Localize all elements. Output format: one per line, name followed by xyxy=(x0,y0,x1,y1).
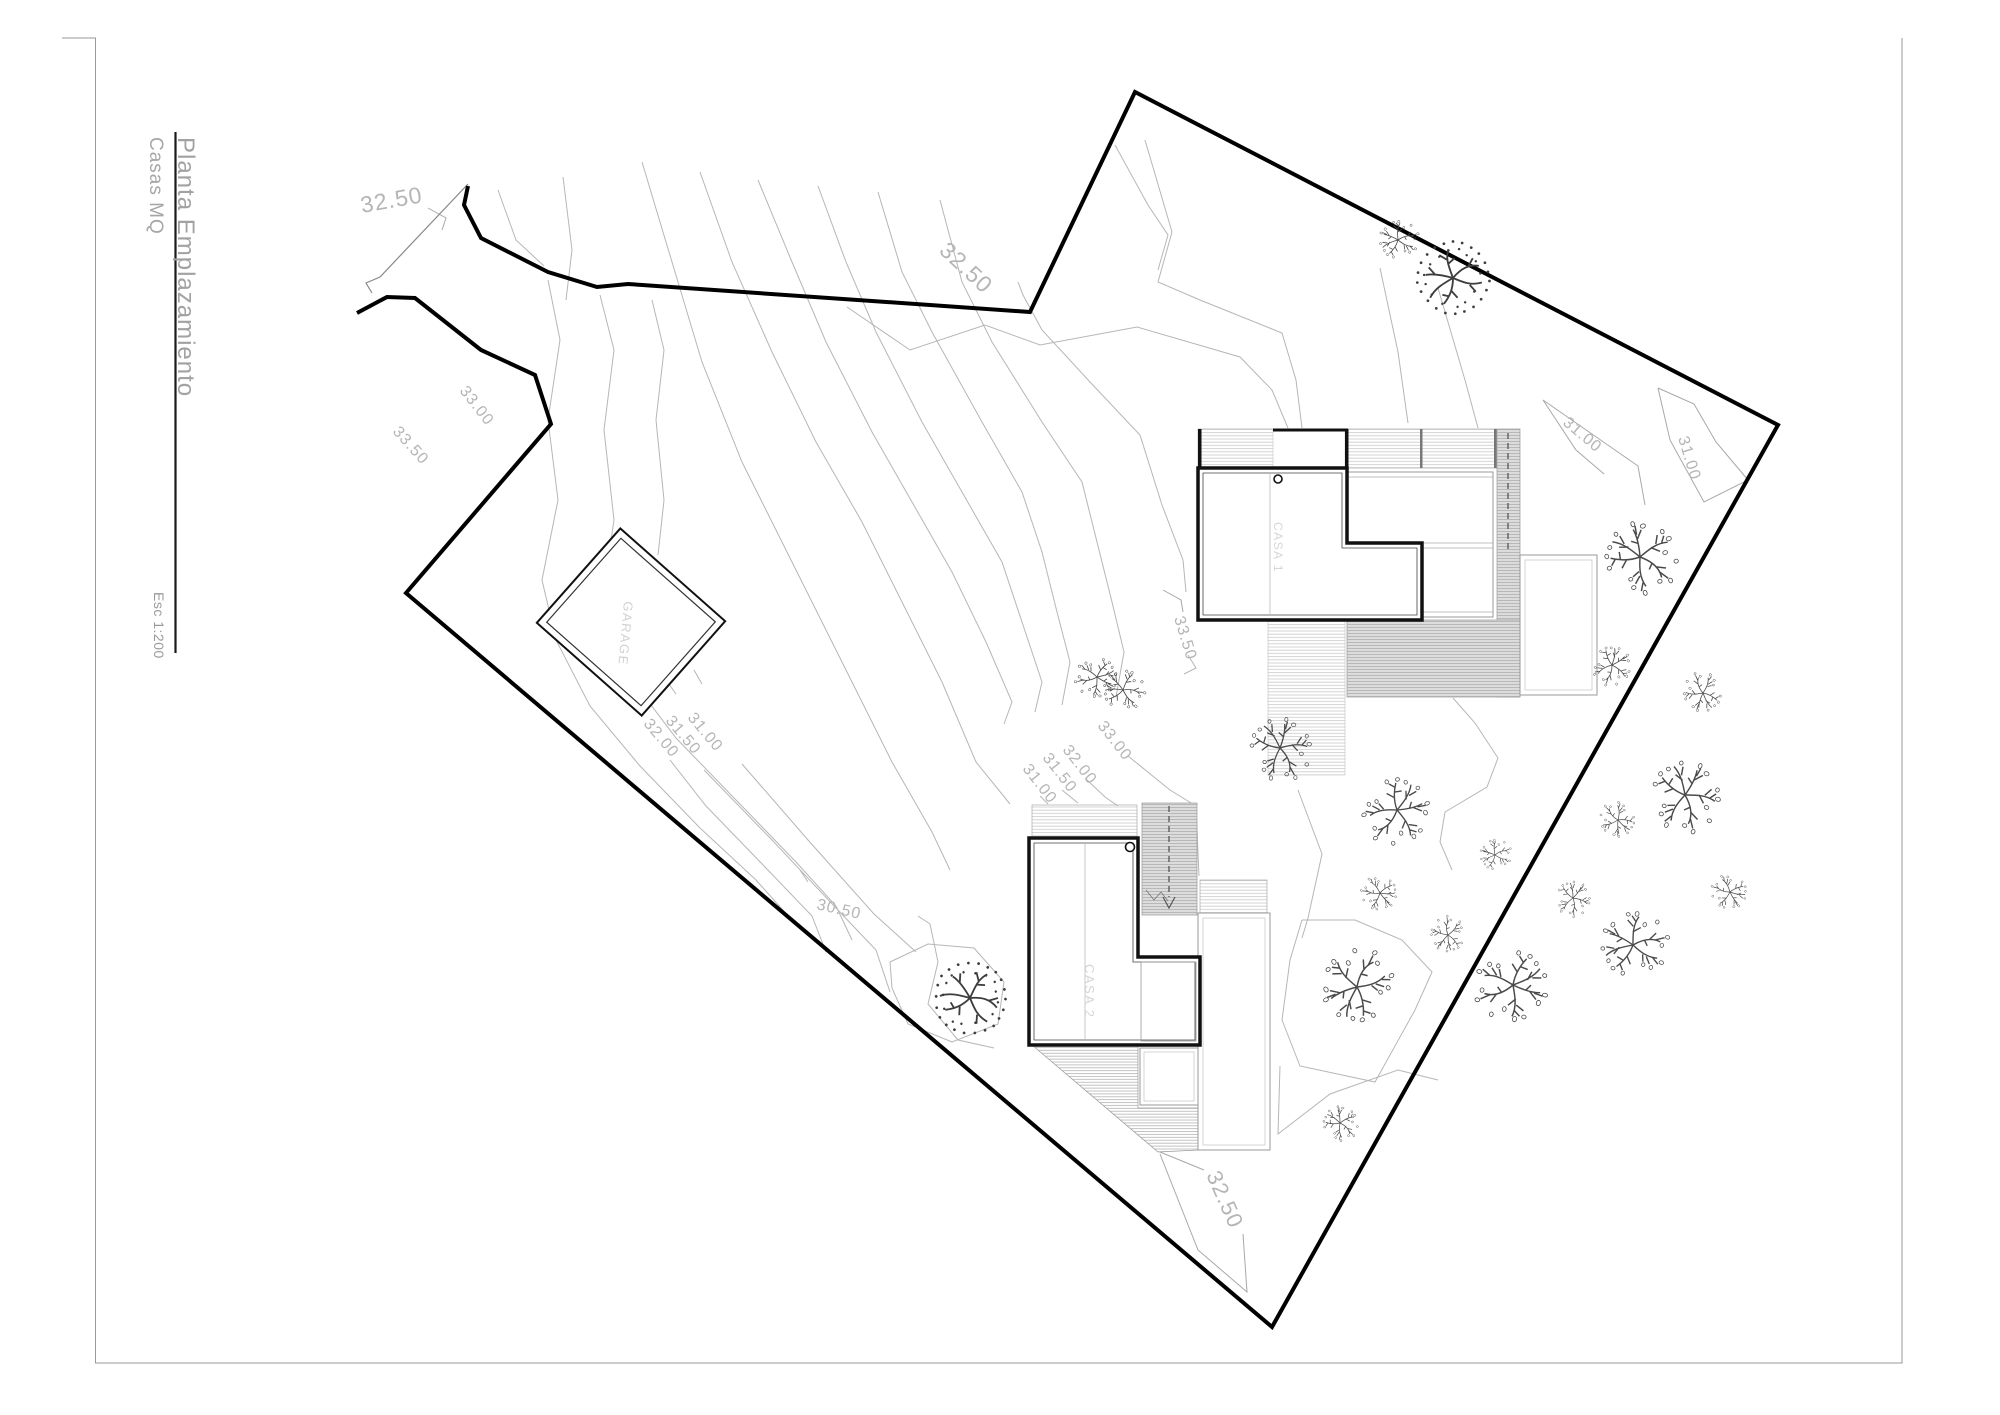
site-plan-canvas: GARAGE CASA 1 xyxy=(0,0,2000,1415)
page-subtitle: Casas MQ xyxy=(145,137,166,235)
contour-line xyxy=(704,770,890,992)
sheet-border xyxy=(62,38,1902,1363)
scale-note: Esc 1:200 xyxy=(151,592,167,659)
contour-line xyxy=(800,870,808,882)
sheet: GARAGE CASA 1 xyxy=(0,0,2000,1415)
tree-icon xyxy=(1598,799,1638,840)
casa2-east-platform xyxy=(1198,913,1270,1150)
contour-elevation-label: 30.50 xyxy=(815,896,863,923)
site-boundary-line xyxy=(357,92,1778,1327)
contour-line xyxy=(1115,145,1168,270)
contour-elevation-label: 33.50 xyxy=(389,423,432,468)
contour-line xyxy=(642,162,950,870)
casa1-deck-opening xyxy=(1273,430,1345,468)
tree-icon xyxy=(1477,837,1514,873)
contour-line xyxy=(742,764,916,952)
page-frame: Planta Emplazamiento Casas MQ Esc 1:200 xyxy=(62,38,1902,1363)
casa2-roof-vent xyxy=(1126,843,1135,852)
contour-elevation-label: 31.00 xyxy=(1674,434,1703,482)
casa1-label: CASA 1 xyxy=(1271,522,1285,573)
tree-icon xyxy=(1681,669,1726,715)
tree-icon xyxy=(1705,867,1754,917)
tree-icon xyxy=(1595,511,1687,605)
contour-line xyxy=(1298,790,1322,938)
tree-icon xyxy=(1641,751,1730,842)
casa2-upper-deck xyxy=(1032,805,1137,837)
tree-icon xyxy=(1355,868,1405,917)
tree-icon xyxy=(1591,903,1677,987)
casa1-roof-vent xyxy=(1274,475,1282,483)
contour-line xyxy=(1282,920,1432,1082)
contour-leader-line xyxy=(1160,1152,1204,1170)
casa1-walkway xyxy=(1268,620,1345,775)
contour-line xyxy=(652,300,664,555)
tree-icon xyxy=(1424,910,1472,958)
contour-elevation-label: 32.50 xyxy=(358,181,424,217)
site-boundary-layer xyxy=(357,92,1778,1327)
tree-icon xyxy=(1549,874,1597,922)
contour-elevation-label: 33.00 xyxy=(1094,718,1135,764)
contour-line xyxy=(694,670,702,684)
contour-line xyxy=(818,186,1042,712)
contour-elevation-label: 33.50 xyxy=(1170,614,1199,662)
tree-icon xyxy=(1095,661,1153,719)
contour-leader-line xyxy=(428,208,446,230)
tree-icon xyxy=(1353,769,1439,853)
contour-line xyxy=(1440,698,1498,870)
contour-line xyxy=(918,916,994,1048)
contour-line xyxy=(498,190,544,266)
casa2-east-deck xyxy=(1200,880,1267,915)
casa1-east-platform xyxy=(1520,555,1597,695)
contour-line xyxy=(1145,140,1302,428)
casa1-terrace xyxy=(1347,620,1520,697)
contour-elevation-label: 32.50 xyxy=(935,237,998,299)
contour-line xyxy=(1438,288,1478,428)
casa1-building: CASA 1 xyxy=(1198,429,1597,775)
page-title: Planta Emplazamiento xyxy=(172,137,199,397)
tree-icon xyxy=(1308,937,1407,1035)
contour-elevation-label: 32.50 xyxy=(1201,1167,1248,1232)
tree-icon xyxy=(1070,651,1123,703)
tree-icon xyxy=(1416,240,1491,315)
contour-line xyxy=(563,177,572,300)
leader-lines-layer xyxy=(428,208,1748,1292)
contour-leader-line xyxy=(1658,388,1748,502)
contour-leader-line xyxy=(1163,590,1183,612)
casa2-south-platform xyxy=(1140,1048,1198,1105)
contour-line xyxy=(1380,268,1408,423)
casa2-label: CASA 2 xyxy=(1082,964,1097,1019)
contour-line xyxy=(847,307,1288,428)
tree-icon xyxy=(1374,216,1422,263)
casa2-building: CASA 2 xyxy=(1029,803,1270,1152)
contour-line xyxy=(1018,282,1186,592)
contour-elevation-label: 33.00 xyxy=(456,383,497,429)
contour-line xyxy=(670,760,826,952)
tree-icon xyxy=(1319,1102,1362,1146)
